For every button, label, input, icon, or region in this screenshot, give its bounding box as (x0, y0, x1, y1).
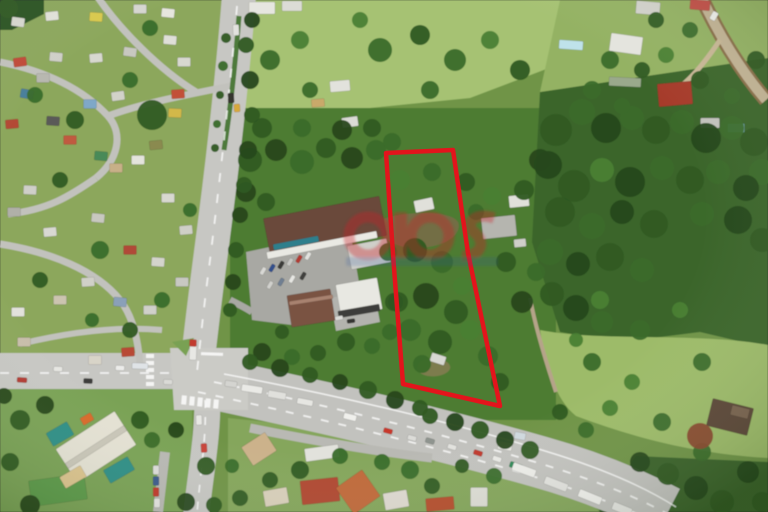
aerial-photo (0, 0, 768, 512)
photo-vignette (0, 0, 768, 512)
aerial-photo-canvas (0, 0, 768, 512)
